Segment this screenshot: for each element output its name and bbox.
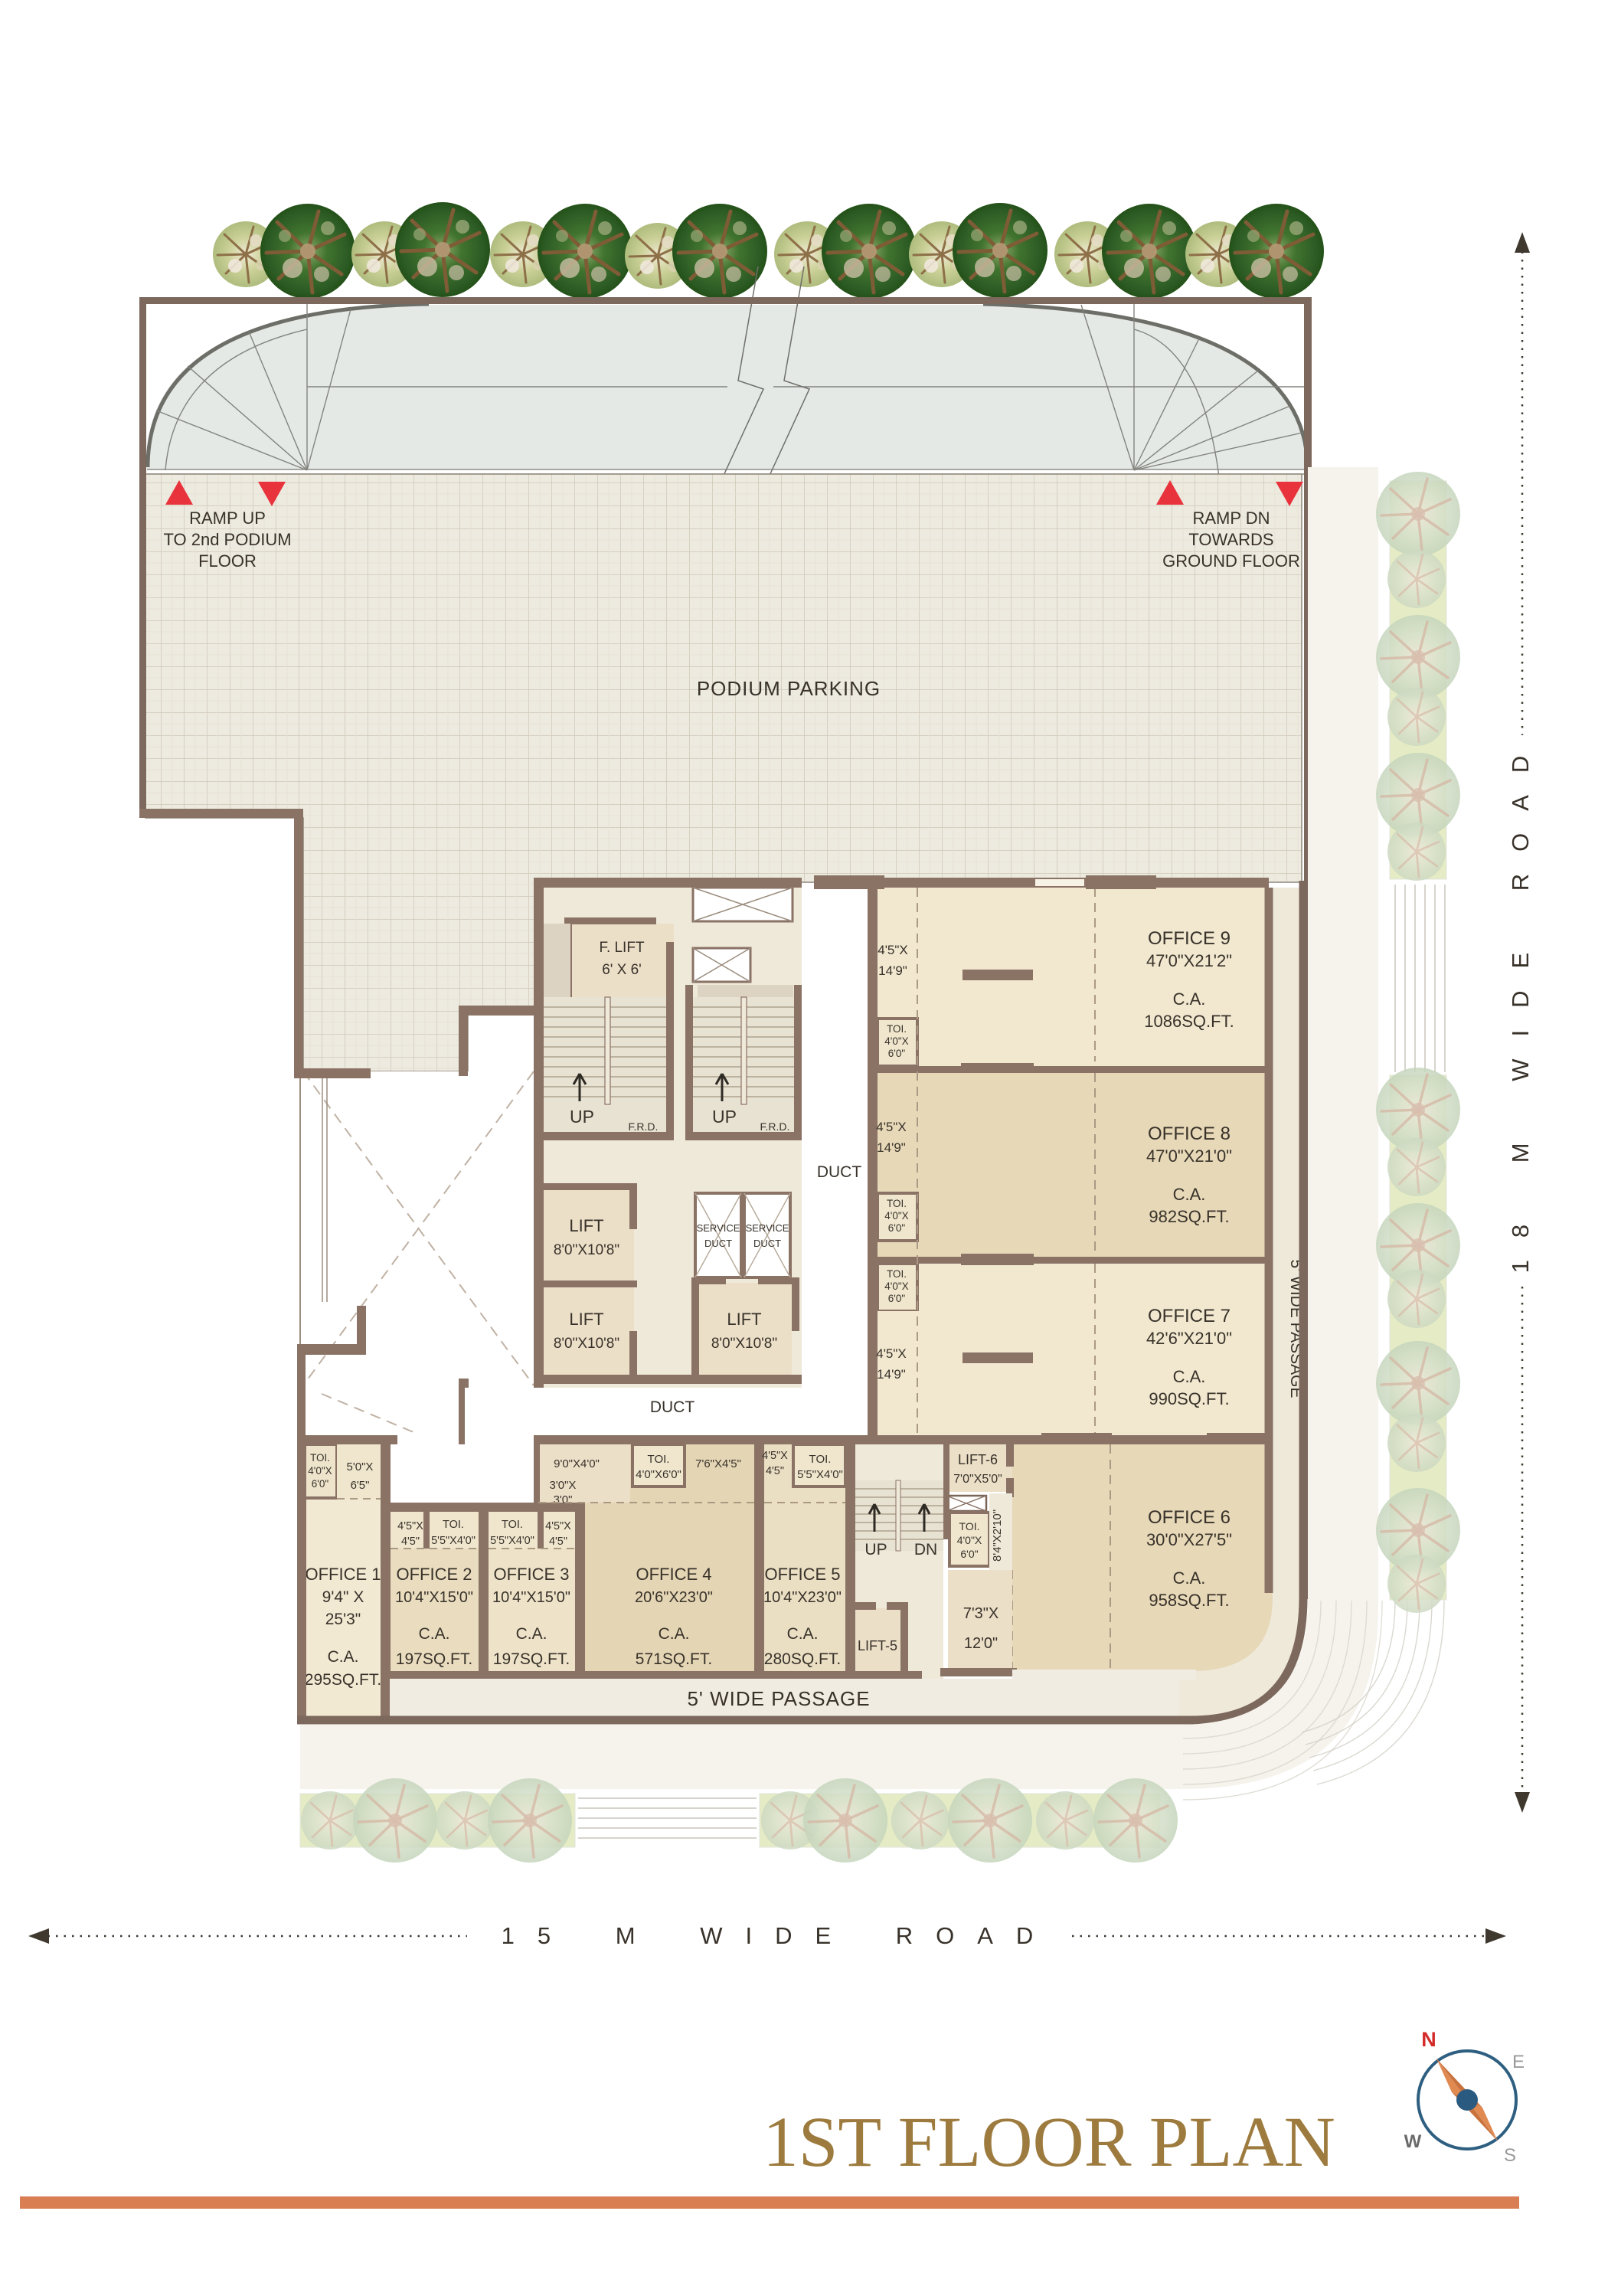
svg-text:DUCT: DUCT — [704, 1238, 732, 1249]
svg-text:TOI.: TOI. — [959, 1520, 980, 1532]
svg-text:F. LIFT: F. LIFT — [599, 940, 645, 956]
svg-text:OFFICE 7: OFFICE 7 — [1148, 1306, 1231, 1326]
svg-text:3'0": 3'0" — [554, 1493, 573, 1506]
svg-text:7'6"X4'5": 7'6"X4'5" — [695, 1457, 741, 1470]
svg-text:TOI.: TOI. — [887, 1268, 907, 1280]
svg-text:TO 2nd PODIUM: TO 2nd PODIUM — [163, 530, 291, 549]
svg-text:6'0": 6'0" — [888, 1048, 906, 1059]
svg-text:TOI.: TOI. — [887, 1023, 907, 1035]
svg-text:4'5": 4'5" — [549, 1536, 567, 1548]
svg-text:UP: UP — [570, 1107, 594, 1127]
svg-text:14'9": 14'9" — [877, 1140, 906, 1155]
svg-text:LIFT-5: LIFT-5 — [858, 1638, 897, 1653]
svg-text:5'5"X4'0": 5'5"X4'0" — [490, 1535, 534, 1547]
svg-text:C.A.: C.A. — [516, 1625, 547, 1643]
svg-text:47'0"X21'0": 47'0"X21'0" — [1146, 1146, 1232, 1166]
svg-text:5'5"X4'0": 5'5"X4'0" — [797, 1468, 843, 1481]
svg-text:6' X 6': 6' X 6' — [602, 962, 642, 978]
svg-text:F.R.D.: F.R.D. — [760, 1120, 790, 1133]
svg-text:OFFICE 6: OFFICE 6 — [1148, 1507, 1231, 1528]
svg-text:C.A.: C.A. — [787, 1625, 819, 1643]
svg-text:TOI.: TOI. — [887, 1198, 907, 1209]
svg-text:4'5"X: 4'5"X — [545, 1520, 571, 1532]
svg-text:8'0"X10'8": 8'0"X10'8" — [554, 1242, 619, 1258]
svg-text:4'0"X: 4'0"X — [884, 1035, 908, 1047]
svg-text:25'3": 25'3" — [325, 1611, 361, 1628]
svg-text:UP: UP — [864, 1541, 887, 1558]
svg-text:1086SQ.FT.: 1086SQ.FT. — [1144, 1012, 1234, 1031]
svg-text:LIFT-6: LIFT-6 — [958, 1452, 998, 1467]
svg-text:10'4"X15'0": 10'4"X15'0" — [492, 1589, 570, 1606]
svg-text:14'9": 14'9" — [878, 963, 907, 978]
svg-text:4'5"X: 4'5"X — [878, 943, 908, 957]
svg-text:571SQ.FT.: 571SQ.FT. — [636, 1650, 712, 1668]
svg-text:5'0"X: 5'0"X — [347, 1460, 374, 1473]
svg-text:6'5": 6'5" — [351, 1479, 370, 1492]
svg-text:TOI.: TOI. — [310, 1452, 330, 1464]
svg-text:12'0": 12'0" — [964, 1635, 998, 1652]
svg-text:GROUND FLOOR: GROUND FLOOR — [1162, 551, 1300, 571]
svg-text:197SQ.FT.: 197SQ.FT. — [493, 1650, 570, 1668]
svg-text:C.A.: C.A. — [1173, 1568, 1206, 1588]
svg-text:LIFT: LIFT — [569, 1216, 603, 1235]
svg-text:N: N — [1421, 2028, 1436, 2051]
svg-text:9'4" X: 9'4" X — [322, 1588, 364, 1606]
svg-text:9'0"X4'0": 9'0"X4'0" — [554, 1457, 600, 1470]
svg-text:4'5"X: 4'5"X — [876, 1346, 907, 1361]
svg-text:6'0": 6'0" — [312, 1478, 329, 1490]
svg-text:3'0"X: 3'0"X — [550, 1479, 577, 1492]
svg-text:10'4"X23'0": 10'4"X23'0" — [763, 1589, 842, 1606]
svg-text:OFFICE 5: OFFICE 5 — [764, 1565, 840, 1584]
svg-text:5'5"X4'0": 5'5"X4'0" — [431, 1535, 476, 1547]
svg-text:8'0"X10'8": 8'0"X10'8" — [554, 1336, 619, 1352]
svg-text:DUCT: DUCT — [753, 1238, 781, 1249]
svg-text:C.A.: C.A. — [659, 1625, 690, 1643]
svg-text:4'0"X: 4'0"X — [957, 1534, 982, 1546]
svg-text:S: S — [1504, 2145, 1516, 2166]
svg-text:20'6"X23'0": 20'6"X23'0" — [635, 1589, 713, 1606]
svg-text:E: E — [1512, 2052, 1525, 2072]
svg-text:OFFICE 3: OFFICE 3 — [493, 1565, 569, 1584]
svg-text:4'5"X: 4'5"X — [762, 1450, 788, 1462]
svg-text:4'0"X: 4'0"X — [308, 1465, 332, 1477]
svg-text:8'4"X2'10": 8'4"X2'10" — [991, 1509, 1004, 1562]
svg-text:FLOOR: FLOOR — [198, 551, 257, 571]
svg-text:47'0"X21'2": 47'0"X21'2" — [1146, 951, 1232, 970]
svg-text:C.A.: C.A. — [1173, 989, 1206, 1009]
svg-text:OFFICE 9: OFFICE 9 — [1148, 928, 1231, 949]
svg-text:DN: DN — [914, 1541, 937, 1558]
svg-text:DUCT: DUCT — [817, 1163, 861, 1181]
svg-text:TOI.: TOI. — [502, 1519, 523, 1531]
svg-text:4'0"X6'0": 4'0"X6'0" — [636, 1468, 681, 1481]
svg-text:OFFICE 4: OFFICE 4 — [636, 1565, 711, 1584]
svg-text:PODIUM PARKING: PODIUM PARKING — [697, 677, 881, 700]
svg-text:TOWARDS: TOWARDS — [1188, 530, 1273, 549]
svg-text:10'4"X15'0": 10'4"X15'0" — [395, 1589, 473, 1606]
svg-text:990SQ.FT.: 990SQ.FT. — [1149, 1389, 1229, 1408]
svg-text:OFFICE 2: OFFICE 2 — [396, 1565, 472, 1584]
svg-text:LIFT: LIFT — [569, 1310, 603, 1329]
svg-text:C.A.: C.A. — [328, 1648, 359, 1666]
svg-text:7'3"X: 7'3"X — [963, 1605, 999, 1622]
svg-text:6'0": 6'0" — [888, 1222, 906, 1234]
svg-text:280SQ.FT.: 280SQ.FT. — [764, 1650, 841, 1668]
svg-text:OFFICE 8: OFFICE 8 — [1148, 1123, 1231, 1144]
svg-text:C.A.: C.A. — [419, 1625, 450, 1643]
svg-text:4'0"X: 4'0"X — [884, 1280, 908, 1292]
svg-text:42'6"X21'0": 42'6"X21'0" — [1146, 1329, 1232, 1348]
svg-text:W: W — [1404, 2131, 1422, 2152]
svg-text:TOI.: TOI. — [809, 1453, 832, 1466]
svg-text:15 M WIDE ROAD: 15 M WIDE ROAD — [502, 1922, 1057, 1949]
svg-text:30'0"X27'5": 30'0"X27'5" — [1146, 1530, 1232, 1549]
svg-text:4'5": 4'5" — [766, 1465, 784, 1477]
svg-text:RAMP DN: RAMP DN — [1192, 509, 1270, 528]
svg-text:14'9": 14'9" — [877, 1367, 906, 1382]
svg-text:LIFT: LIFT — [727, 1310, 761, 1329]
svg-text:958SQ.FT.: 958SQ.FT. — [1149, 1591, 1229, 1610]
svg-text:6'0": 6'0" — [888, 1293, 906, 1304]
svg-text:OFFICE 1: OFFICE 1 — [305, 1565, 381, 1584]
svg-text:TOI.: TOI. — [443, 1519, 464, 1531]
svg-text:1ST FLOOR PLAN: 1ST FLOOR PLAN — [763, 2103, 1335, 2182]
svg-text:DUCT: DUCT — [650, 1398, 695, 1416]
svg-text:TOI.: TOI. — [648, 1453, 670, 1466]
svg-text:18 M WIDE ROAD: 18 M WIDE ROAD — [1507, 734, 1534, 1274]
svg-text:C.A.: C.A. — [1173, 1185, 1206, 1204]
svg-text:C.A.: C.A. — [1173, 1367, 1206, 1386]
svg-text:8'0"X10'8": 8'0"X10'8" — [711, 1336, 777, 1352]
svg-text:4'5": 4'5" — [401, 1536, 420, 1548]
svg-text:4'5"X: 4'5"X — [876, 1120, 907, 1134]
svg-text:982SQ.FT.: 982SQ.FT. — [1149, 1207, 1229, 1226]
svg-text:4'0"X: 4'0"X — [884, 1210, 908, 1222]
svg-text:6'0": 6'0" — [960, 1548, 978, 1560]
svg-text:SERVICE: SERVICE — [746, 1222, 789, 1234]
svg-text:295SQ.FT.: 295SQ.FT. — [305, 1671, 381, 1689]
svg-text:5' WIDE PASSAGE: 5' WIDE PASSAGE — [687, 1687, 870, 1710]
svg-text:SERVICE: SERVICE — [697, 1222, 740, 1234]
svg-text:F.R.D.: F.R.D. — [629, 1120, 659, 1133]
svg-text:197SQ.FT.: 197SQ.FT. — [396, 1650, 472, 1668]
svg-text:4'5"X: 4'5"X — [397, 1520, 423, 1532]
svg-text:UP: UP — [712, 1107, 737, 1127]
svg-text:RAMP UP: RAMP UP — [189, 509, 266, 528]
svg-text:7'0"X5'0": 7'0"X5'0" — [953, 1473, 1002, 1486]
